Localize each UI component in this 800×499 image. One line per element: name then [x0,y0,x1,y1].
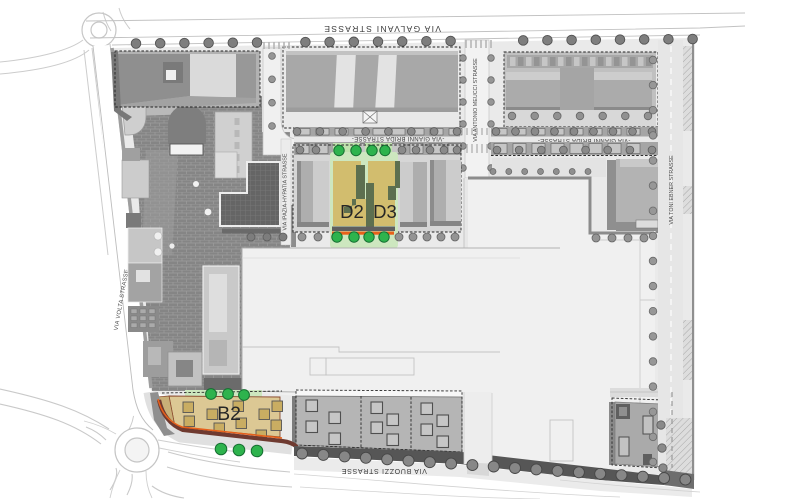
svg-text:B2: B2 [217,403,241,425]
svg-text:VIA ANTONIO MEUCCI STRASSE: VIA ANTONIO MEUCCI STRASSE [473,58,479,142]
svg-text:VIA TONI EBNER STRASSE: VIA TONI EBNER STRASSE [669,155,675,225]
svg-text:VIA IPAZIA-HYPATIA STRASSE: VIA IPAZIA-HYPATIA STRASSE [283,153,289,230]
svg-text:VIA GALVANI STRASSE: VIA GALVANI STRASSE [323,24,441,34]
svg-text:VIA BUOZZI STRASSE: VIA BUOZZI STRASSE [341,467,427,474]
svg-text:D3: D3 [373,201,397,222]
svg-text:D2: D2 [340,201,364,222]
